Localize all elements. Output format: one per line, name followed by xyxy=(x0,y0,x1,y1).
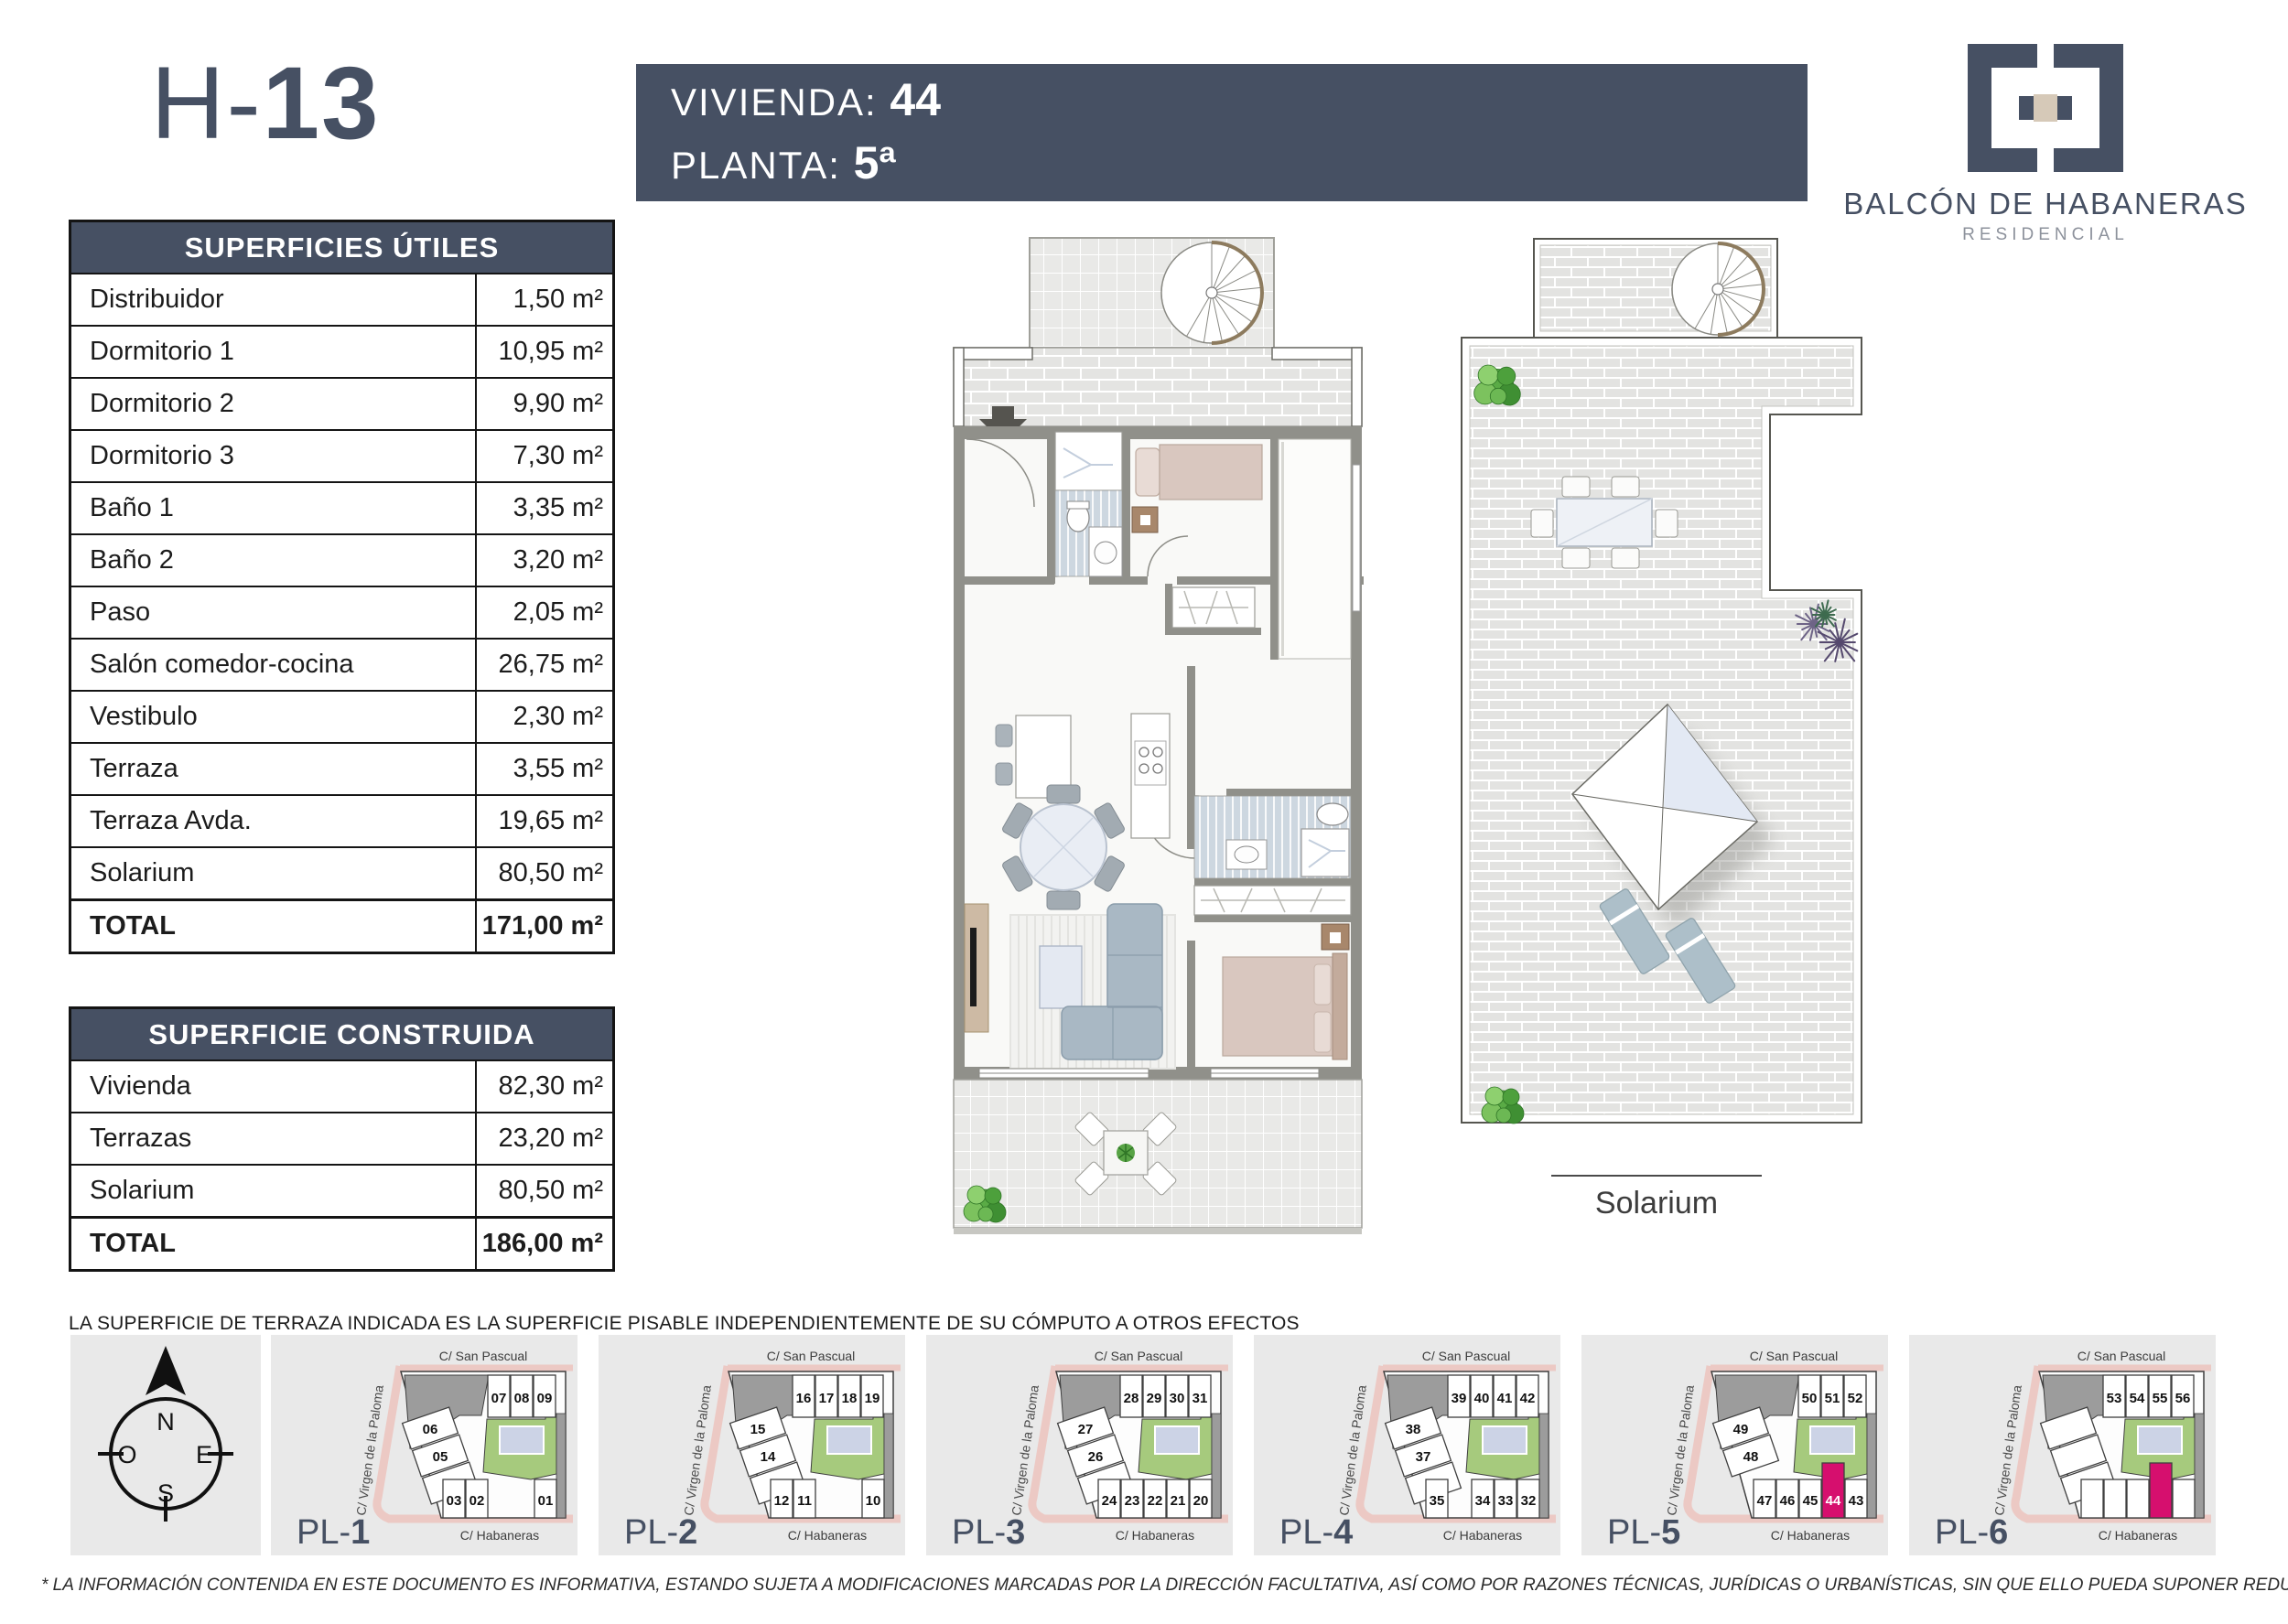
legal-note: * LA INFORMACIÓN CONTENIDA EN ESTE DOCUM… xyxy=(41,1576,2274,1596)
row-value: 3,20 m² xyxy=(475,535,612,586)
svg-text:C/ San Pascual: C/ San Pascual xyxy=(1750,1349,1839,1363)
svg-text:33: 33 xyxy=(1498,1493,1514,1509)
brand-name: BALCÓN DE HABANERAS xyxy=(1830,187,2261,221)
svg-text:07: 07 xyxy=(491,1391,507,1406)
solarium-label: Solarium xyxy=(1551,1175,1762,1221)
row-label: Baño 1 xyxy=(71,483,475,533)
svg-text:41: 41 xyxy=(1497,1391,1513,1406)
row-value: 2,30 m² xyxy=(475,692,612,742)
row-value: 10,95 m² xyxy=(475,327,612,377)
bush-icon xyxy=(964,1186,1006,1222)
row-value: 26,75 m² xyxy=(475,640,612,690)
wardrobe-hall xyxy=(1172,587,1255,628)
svg-text:15: 15 xyxy=(750,1422,766,1437)
svg-text:C/ San Pascual: C/ San Pascual xyxy=(767,1349,856,1363)
mini-plan-pl-6: 53545556C/ San PascualC/ HabanerasC/ Vir… xyxy=(1909,1335,2216,1555)
page: H-13 VIVIENDA: 44 PLANTA: 5ª BALCÓN DE H… xyxy=(0,0,2288,1624)
bush-icon xyxy=(1482,1087,1524,1124)
solarium-stair-landing xyxy=(1534,239,1777,338)
svg-text:55: 55 xyxy=(2153,1391,2168,1406)
table-header: SUPERFICIE CONSTRUIDA xyxy=(71,1009,612,1059)
row-value: 2,05 m² xyxy=(475,587,612,638)
row-label: Solarium xyxy=(71,848,475,898)
svg-text:47: 47 xyxy=(1757,1493,1773,1509)
row-value: 1,50 m² xyxy=(475,274,612,325)
svg-text:C/ Habaneras: C/ Habaneras xyxy=(1443,1528,1522,1543)
lower-terrace xyxy=(954,1080,1362,1234)
svg-text:49: 49 xyxy=(1733,1422,1749,1437)
plan-label-pl-1: PL-1 xyxy=(297,1513,370,1552)
svg-text:C/ San Pascual: C/ San Pascual xyxy=(1095,1349,1183,1363)
total-value: 171,00 m² xyxy=(475,901,612,952)
table-row: Solarium80,50 m² xyxy=(71,1164,612,1216)
svg-text:37: 37 xyxy=(1416,1449,1431,1465)
svg-text:29: 29 xyxy=(1147,1391,1162,1406)
table-row: Baño 13,35 m² xyxy=(71,481,612,533)
plan-label-pl-6: PL-6 xyxy=(1935,1513,2008,1552)
vivienda-value: 44 xyxy=(890,74,941,125)
row-value: 80,50 m² xyxy=(475,848,612,898)
svg-text:O: O xyxy=(117,1441,136,1468)
header-vivienda: VIVIENDA: 44 xyxy=(671,70,1808,133)
svg-text:32: 32 xyxy=(1521,1493,1537,1509)
svg-text:17: 17 xyxy=(819,1391,835,1406)
svg-text:34: 34 xyxy=(1475,1493,1491,1509)
svg-text:08: 08 xyxy=(514,1391,530,1406)
table-row: Salón comedor-cocina26,75 m² xyxy=(71,638,612,690)
table-header: SUPERFICIES ÚTILES xyxy=(71,222,612,273)
svg-text:27: 27 xyxy=(1078,1422,1094,1437)
mini-plan-pl-1: 070809060504030201C/ San PascualC/ Haban… xyxy=(271,1335,577,1555)
row-label: Vivienda xyxy=(71,1061,475,1112)
row-label: Terraza Avda. xyxy=(71,796,475,846)
spiral-staircase xyxy=(1161,242,1262,343)
svg-text:54: 54 xyxy=(2130,1391,2145,1406)
plan-label-pl-2: PL-2 xyxy=(624,1513,697,1552)
svg-text:C/ San Pascual: C/ San Pascual xyxy=(2078,1349,2166,1363)
svg-text:46: 46 xyxy=(1780,1493,1796,1509)
bush-icon xyxy=(1474,365,1521,405)
row-label: Distribuidor xyxy=(71,274,475,325)
apartment-floor-plan xyxy=(952,236,1364,1242)
dining-table xyxy=(1001,785,1126,909)
mini-plan-pl-4: 3940414238373635343332C/ San PascualC/ H… xyxy=(1254,1335,1560,1555)
row-value: 3,35 m² xyxy=(475,483,612,533)
table-row: Paso2,05 m² xyxy=(71,586,612,638)
row-value: 23,20 m² xyxy=(475,1113,612,1164)
svg-text:06: 06 xyxy=(423,1422,438,1437)
row-label: Terrazas xyxy=(71,1113,475,1164)
solarium-plan xyxy=(1455,236,1968,1169)
svg-text:43: 43 xyxy=(1849,1493,1864,1509)
svg-text:52: 52 xyxy=(1848,1391,1863,1406)
table-total-row: TOTAL186,00 m² xyxy=(71,1216,612,1269)
plan-label-pl-5: PL-5 xyxy=(1607,1513,1680,1552)
table-superficies-utiles: SUPERFICIES ÚTILES Distribuidor1,50 m²Do… xyxy=(69,220,615,954)
svg-text:16: 16 xyxy=(796,1391,812,1406)
svg-text:C/ Habaneras: C/ Habaneras xyxy=(1116,1528,1194,1543)
header-bar: VIVIENDA: 44 PLANTA: 5ª xyxy=(636,64,1808,201)
svg-text:35: 35 xyxy=(1430,1493,1445,1509)
svg-text:C/ Habaneras: C/ Habaneras xyxy=(1771,1528,1850,1543)
svg-text:03: 03 xyxy=(447,1493,462,1509)
svg-text:24: 24 xyxy=(1102,1493,1117,1509)
wardrobe-bedroom1 xyxy=(1194,886,1351,915)
svg-text:14: 14 xyxy=(761,1449,776,1465)
table-row: Distribuidor1,50 m² xyxy=(71,273,612,325)
total-label: TOTAL xyxy=(71,901,475,952)
planta-label: PLANTA: xyxy=(671,144,841,187)
row-value: 80,50 m² xyxy=(475,1166,612,1216)
windows xyxy=(979,1069,1319,1078)
svg-text:18: 18 xyxy=(842,1391,858,1406)
svg-text:44: 44 xyxy=(1826,1493,1841,1509)
svg-text:C/ Habaneras: C/ Habaneras xyxy=(2099,1528,2177,1543)
table-row: Terraza Avda.19,65 m² xyxy=(71,794,612,846)
svg-text:51: 51 xyxy=(1825,1391,1840,1406)
svg-text:C/ Habaneras: C/ Habaneras xyxy=(788,1528,867,1543)
svg-text:10: 10 xyxy=(866,1493,881,1509)
svg-text:53: 53 xyxy=(2107,1391,2122,1406)
row-label: Vestibulo xyxy=(71,692,475,742)
svg-text:56: 56 xyxy=(2175,1391,2191,1406)
table-row: Dormitorio 29,90 m² xyxy=(71,377,612,429)
row-label: Salón comedor-cocina xyxy=(71,640,475,690)
svg-text:19: 19 xyxy=(865,1391,880,1406)
svg-text:N: N xyxy=(156,1408,175,1436)
page-title-number: 13 xyxy=(263,46,381,160)
row-value: 82,30 m² xyxy=(475,1061,612,1112)
table-superficie-construida: SUPERFICIE CONSTRUIDA Vivienda82,30 m²Te… xyxy=(69,1006,615,1272)
row-value: 7,30 m² xyxy=(475,431,612,481)
svg-text:C/ San Pascual: C/ San Pascual xyxy=(1422,1349,1511,1363)
bathroom-2 xyxy=(1194,796,1351,878)
row-value: 9,90 m² xyxy=(475,379,612,429)
row-value: 19,65 m² xyxy=(475,796,612,846)
svg-text:38: 38 xyxy=(1406,1422,1421,1437)
table-row: Baño 23,20 m² xyxy=(71,533,612,586)
svg-text:09: 09 xyxy=(537,1391,553,1406)
row-label: Dormitorio 3 xyxy=(71,431,475,481)
mini-plan-pl-2: 16171819151413121110C/ San PascualC/ Hab… xyxy=(599,1335,905,1555)
table-row: Solarium80,50 m² xyxy=(71,846,612,898)
terrace-note: LA SUPERFICIE DE TERRAZA INDICADA ES LA … xyxy=(69,1313,1300,1335)
svg-text:39: 39 xyxy=(1452,1391,1467,1406)
row-label: Solarium xyxy=(71,1166,475,1216)
svg-text:01: 01 xyxy=(538,1493,554,1509)
svg-text:21: 21 xyxy=(1171,1493,1186,1509)
svg-text:28: 28 xyxy=(1124,1391,1139,1406)
row-value: 3,55 m² xyxy=(475,744,612,794)
plan-label-pl-3: PL-3 xyxy=(952,1513,1025,1552)
svg-text:50: 50 xyxy=(1802,1391,1818,1406)
svg-text:02: 02 xyxy=(469,1493,485,1509)
mini-plan-pl-3: 282930312726252423222120C/ San PascualC/… xyxy=(926,1335,1233,1555)
table-row: Dormitorio 37,30 m² xyxy=(71,429,612,481)
brand-logo: BALCÓN DE HABANERAS RESIDENCIAL xyxy=(1830,44,2261,245)
table-row: Terraza3,55 m² xyxy=(71,742,612,794)
svg-text:C/ San Pascual: C/ San Pascual xyxy=(439,1349,528,1363)
svg-text:22: 22 xyxy=(1148,1493,1163,1509)
svg-text:23: 23 xyxy=(1125,1493,1140,1509)
table-row: Vivienda82,30 m² xyxy=(71,1059,612,1112)
row-label: Dormitorio 2 xyxy=(71,379,475,429)
brand-logo-icon xyxy=(1968,44,2123,172)
compass-rose: NESO xyxy=(70,1335,261,1555)
svg-text:12: 12 xyxy=(774,1493,790,1509)
svg-text:05: 05 xyxy=(433,1449,448,1465)
upper-terrace xyxy=(1030,238,1274,348)
table-row: Vestibulo2,30 m² xyxy=(71,690,612,742)
row-label: Paso xyxy=(71,587,475,638)
vivienda-label: VIVIENDA: xyxy=(671,81,878,124)
svg-text:26: 26 xyxy=(1088,1449,1104,1465)
page-title-prefix: H- xyxy=(151,46,263,160)
row-label: Terraza xyxy=(71,744,475,794)
svg-text:45: 45 xyxy=(1803,1493,1819,1509)
row-label: Baño 2 xyxy=(71,535,475,586)
row-label: Dormitorio 1 xyxy=(71,327,475,377)
svg-text:48: 48 xyxy=(1743,1449,1759,1465)
page-title: H-13 xyxy=(119,44,412,162)
bathroom-1 xyxy=(1055,432,1122,576)
balcony-terrace xyxy=(1279,439,1360,659)
total-label: TOTAL xyxy=(71,1219,475,1269)
plan-label-pl-4: PL-4 xyxy=(1279,1513,1353,1552)
svg-text:40: 40 xyxy=(1474,1391,1490,1406)
table-row: Dormitorio 110,95 m² xyxy=(71,325,612,377)
svg-text:S: S xyxy=(157,1479,174,1507)
mini-plan-pl-5: 50515249484746454443C/ San PascualC/ Hab… xyxy=(1581,1335,1888,1555)
svg-text:20: 20 xyxy=(1193,1493,1209,1509)
svg-text:30: 30 xyxy=(1170,1391,1185,1406)
total-value: 186,00 m² xyxy=(475,1219,612,1269)
svg-text:31: 31 xyxy=(1193,1391,1208,1406)
table-row: Terrazas23,20 m² xyxy=(71,1112,612,1164)
planta-value: 5ª xyxy=(854,137,896,188)
svg-text:42: 42 xyxy=(1520,1391,1536,1406)
header-planta: PLANTA: 5ª xyxy=(671,133,1808,196)
svg-text:11: 11 xyxy=(797,1493,812,1509)
svg-text:E: E xyxy=(196,1441,212,1468)
svg-text:C/ Habaneras: C/ Habaneras xyxy=(460,1528,539,1543)
table-total-row: TOTAL171,00 m² xyxy=(71,898,612,952)
spiral-staircase xyxy=(1672,243,1764,335)
